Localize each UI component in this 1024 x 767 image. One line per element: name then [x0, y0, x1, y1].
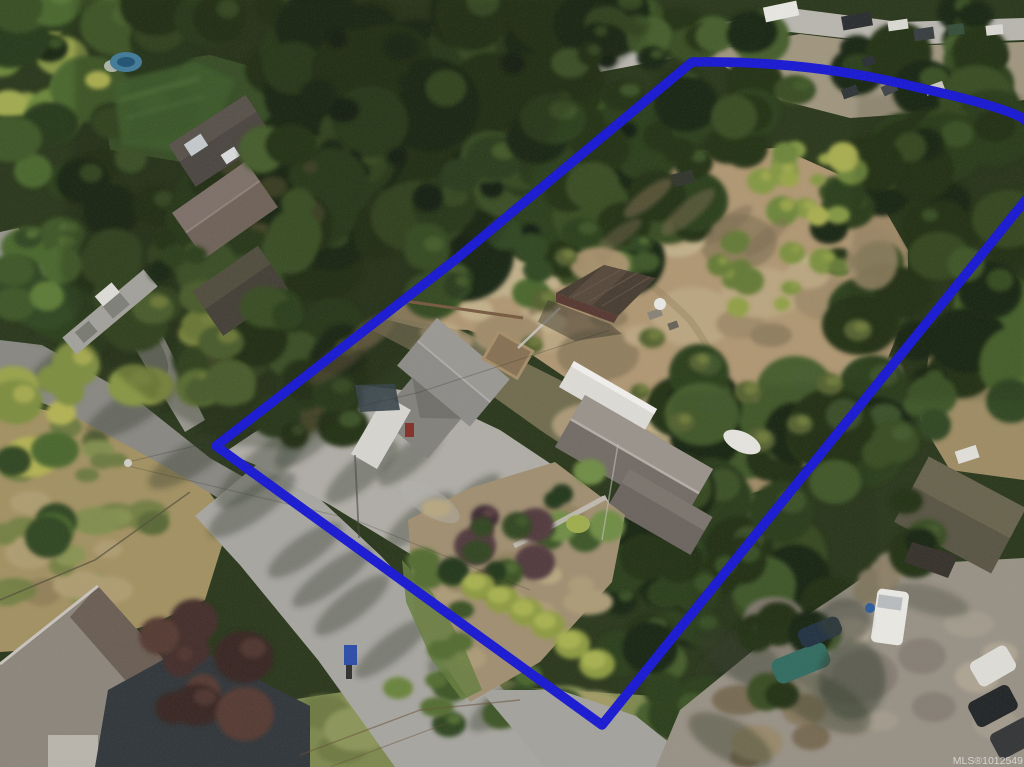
svg-text:MLS®1012549: MLS®1012549	[953, 755, 1023, 767]
